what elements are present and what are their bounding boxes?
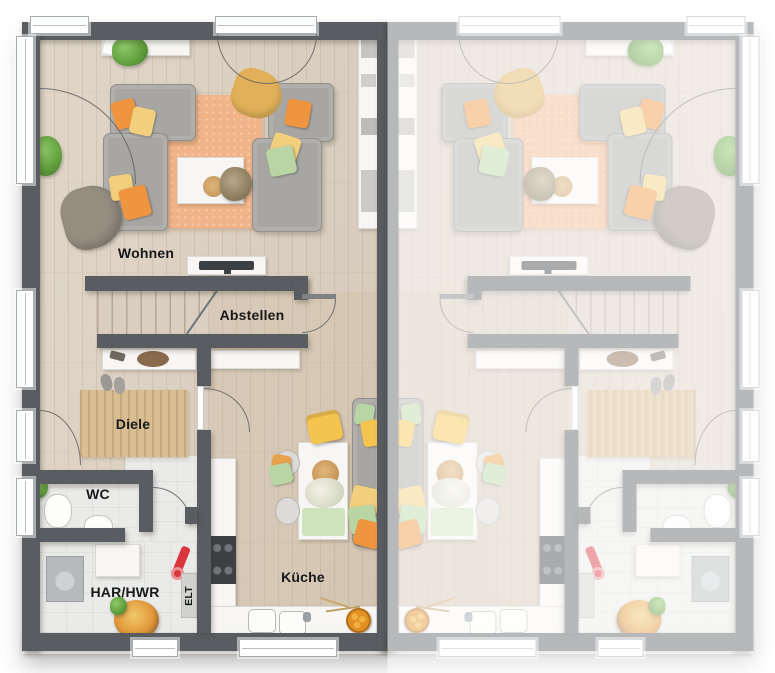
wall-abstellen-south (97, 334, 308, 348)
wall-wc-south (40, 528, 125, 542)
fruit-bowl (346, 608, 371, 633)
window (16, 36, 34, 184)
wall-kueche-west (197, 430, 211, 633)
pillow (284, 98, 312, 129)
window (16, 290, 34, 388)
label-abstellen: Abstellen (220, 307, 285, 323)
utility-table (95, 544, 140, 577)
shelf-decor (361, 74, 376, 87)
label-kueche: Küche (281, 569, 325, 585)
fade-overlay (388, 0, 775, 673)
faucet (303, 612, 311, 622)
unit-right: Wohnen Abstellen Diele WC HAR/HWR ELT Kü… (388, 0, 775, 673)
shoes (113, 377, 125, 395)
wall-wc-north (40, 470, 153, 484)
unit-left: Wohnen Abstellen Diele WC HAR/HWR ELT Kü… (0, 0, 388, 673)
wall-kueche-west (197, 348, 211, 386)
entrance-door (16, 410, 34, 462)
window (239, 639, 337, 657)
label-wc: WC (86, 486, 110, 502)
window (16, 478, 34, 536)
decor-bowl (137, 351, 169, 367)
kitchen-sink (279, 611, 306, 635)
island-bench-cushion (302, 508, 345, 536)
pillow (265, 144, 297, 177)
cooktop (209, 536, 236, 584)
stool (275, 497, 300, 525)
wall-wc-east (139, 484, 153, 532)
terrace-door-window (215, 16, 317, 34)
wall-party (377, 22, 388, 651)
door-leaf (197, 386, 204, 430)
label-elt: ELT (183, 586, 195, 606)
washing-machine (46, 556, 84, 602)
kitchen-sink (248, 609, 276, 633)
label-diele: Diele (116, 416, 150, 432)
window (132, 639, 178, 657)
label-wohnen: Wohnen (118, 245, 174, 261)
wall-wohnen-south (85, 276, 308, 291)
label-har-hwr: HAR/HWR (90, 584, 159, 600)
washbasin (44, 494, 72, 528)
window (30, 16, 89, 34)
tv-stand (224, 269, 231, 274)
kitchen-counter (209, 458, 236, 610)
shelf-decor (361, 40, 377, 58)
console-table (203, 350, 300, 369)
shelf-decor (361, 118, 377, 135)
floorplan-duplex: Wohnen Abstellen Diele WC HAR/HWR ELT Kü… (0, 0, 775, 673)
shelf-decor (361, 170, 377, 212)
